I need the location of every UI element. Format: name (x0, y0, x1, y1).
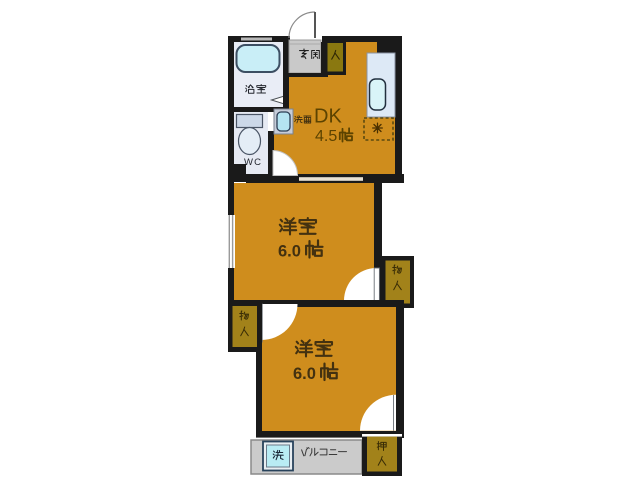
svg-text:6.0: 6.0 (278, 243, 301, 261)
svg-text:DK: DK (314, 106, 342, 128)
svg-text:WC: WC (244, 157, 262, 168)
svg-text:4.5: 4.5 (315, 128, 337, 145)
svg-text:6.0: 6.0 (293, 365, 316, 383)
